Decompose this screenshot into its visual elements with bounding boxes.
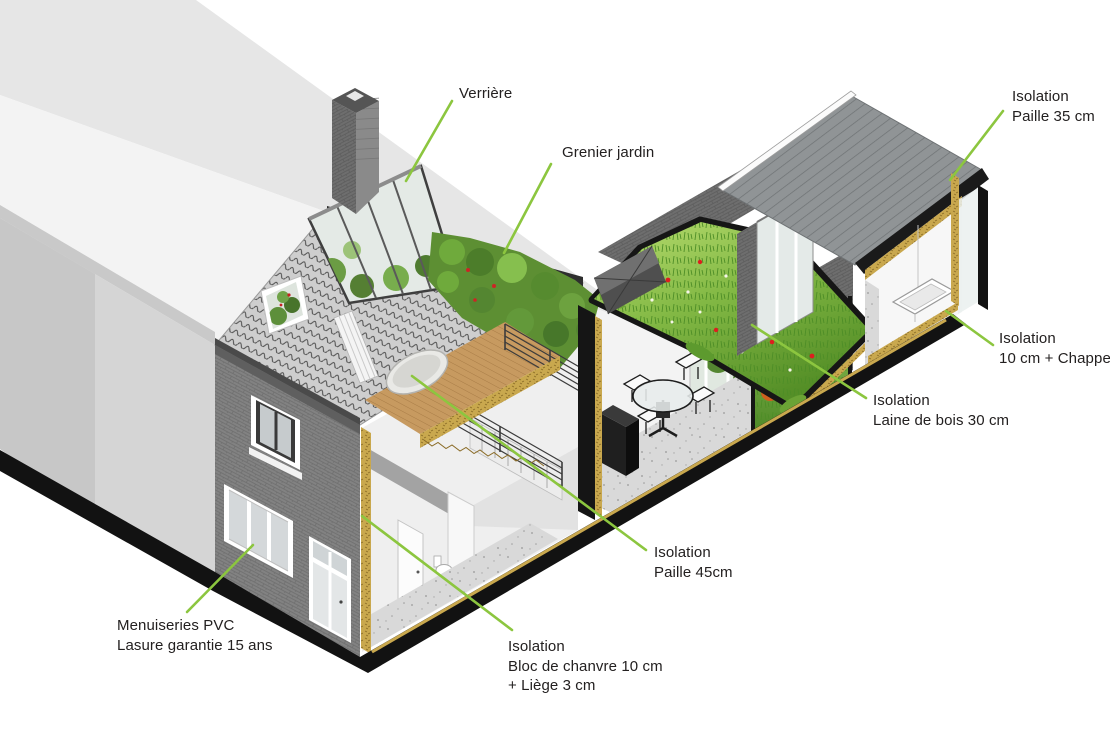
annotation-text: Isolation xyxy=(999,329,1110,349)
outbuilding-front-glass xyxy=(958,188,978,314)
insulation-strip-wall-left xyxy=(361,427,371,654)
annotation-isolation-paille-35: Isolation Paille 35 cm xyxy=(1012,87,1095,126)
annotation-isolation-paille-45: Isolation Paille 45cm xyxy=(654,543,733,582)
insulation-strip-outbuilding-corner xyxy=(951,173,959,306)
annotation-grenier-jardin: Grenier jardin xyxy=(562,143,654,163)
chimney xyxy=(332,88,379,214)
annotation-text: Lasure garantie 15 ans xyxy=(117,636,273,656)
annotation-text: Isolation xyxy=(873,391,1009,411)
dividing-wall-black xyxy=(578,305,595,520)
annotation-text: Paille 35 cm xyxy=(1012,107,1095,127)
annotation-isolation-laine-de-bois: Isolation Laine de bois 30 cm xyxy=(873,391,1009,430)
annotation-text: 10 cm + Chappe xyxy=(999,349,1110,369)
annotation-verriere: Verrière xyxy=(459,84,512,104)
insulation-strip-divider xyxy=(595,316,602,517)
annotation-text: Menuiseries PVC xyxy=(117,616,273,636)
annotation-text: Bloc de chanvre 10 cm xyxy=(508,657,663,677)
annotation-text: Laine de bois 30 cm xyxy=(873,411,1009,431)
annotation-isolation-chanvre-liege: Isolation Bloc de chanvre 10 cm + Liège … xyxy=(508,637,663,696)
annotation-isolation-chappe: Isolation 10 cm + Chappe xyxy=(999,329,1110,368)
outbuilding-brick-pillar xyxy=(737,222,757,356)
annotation-text: + Liège 3 cm xyxy=(508,676,663,696)
annotation-text: Grenier jardin xyxy=(562,143,654,163)
architectural-diagram: Verrière Grenier jardin Isolation Paille… xyxy=(0,0,1110,745)
annotation-text: Isolation xyxy=(508,637,663,657)
annotation-text: Verrière xyxy=(459,84,512,104)
annotation-text: Isolation xyxy=(1012,87,1095,107)
annotation-text: Paille 45cm xyxy=(654,563,733,583)
annotation-menuiseries-pvc: Menuiseries PVC Lasure garantie 15 ans xyxy=(117,616,273,655)
annotation-text: Isolation xyxy=(654,543,733,563)
outbuilding-corner-column xyxy=(978,185,988,310)
